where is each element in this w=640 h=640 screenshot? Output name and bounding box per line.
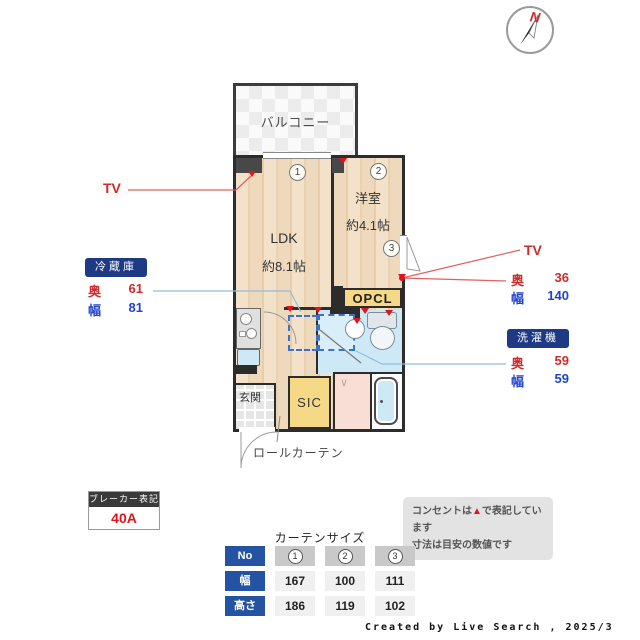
wall-under-kitchen bbox=[236, 365, 257, 374]
outlet-marker-icon bbox=[248, 171, 256, 177]
bathtub-drain-icon bbox=[380, 400, 383, 403]
fridge-placement-box bbox=[288, 315, 318, 351]
tv-depth-value: 36 bbox=[555, 270, 569, 289]
tv-width: 幅 140 bbox=[511, 288, 569, 307]
table-cell-height-1: 186 bbox=[275, 596, 315, 616]
curtain-marker-3: 3 bbox=[383, 240, 400, 257]
outlet-marker-icon bbox=[339, 158, 347, 164]
washer-depth-value: 59 bbox=[555, 353, 569, 372]
washroom: ∨ bbox=[333, 372, 370, 429]
curtain-size-table: No 1 2 3 幅 167 100 111 高さ 186 119 102 bbox=[225, 546, 415, 616]
table-col-1: 1 bbox=[275, 546, 315, 566]
note-line-1: コンセントは▲で表記しています bbox=[412, 503, 544, 537]
ldk-name: LDK bbox=[246, 230, 322, 246]
genkan-label: 玄関 bbox=[239, 389, 261, 405]
sic-label: SIC bbox=[297, 395, 322, 410]
table-cell-height-3: 102 bbox=[375, 596, 415, 616]
kitchen-counter bbox=[236, 308, 261, 349]
bedroom-name: 洋室 bbox=[336, 188, 400, 207]
tv-width-label: 幅 bbox=[511, 288, 524, 307]
fridge-badge: 冷蔵庫 bbox=[85, 258, 147, 277]
fridge-depth-label: 奥 bbox=[88, 281, 101, 300]
breaker-box: ブレーカー表記 40A bbox=[88, 491, 160, 530]
table-row-header-height: 高さ bbox=[225, 596, 265, 616]
table-row-header-no: No bbox=[225, 546, 265, 566]
washer-width-value: 59 bbox=[555, 371, 569, 390]
ldk-size: 約8.1帖 bbox=[246, 256, 322, 275]
toilet-bowl bbox=[370, 326, 395, 350]
table-cell-width-3: 111 bbox=[375, 571, 415, 591]
bathroom bbox=[370, 372, 402, 429]
table-row-header-width: 幅 bbox=[225, 571, 265, 591]
curtain-table-title: カーテンサイズ bbox=[240, 529, 400, 546]
balcony-window bbox=[263, 152, 331, 159]
tv-depth-label: 奥 bbox=[511, 270, 524, 289]
roll-curtain-label: ロールカーテン bbox=[253, 444, 344, 461]
washer-badge: 洗濯機 bbox=[507, 329, 569, 348]
sic-closet: SIC bbox=[288, 376, 331, 429]
outlet-marker-icon bbox=[398, 274, 406, 280]
curtain-marker-2: 2 bbox=[370, 163, 387, 180]
fridge-depth-value: 61 bbox=[129, 281, 143, 300]
table-cell-width-1: 167 bbox=[275, 571, 315, 591]
door-fold-icon: ∨ bbox=[340, 376, 348, 389]
kitchen-burner-icon bbox=[240, 313, 252, 325]
table-col-2: 2 bbox=[325, 546, 365, 566]
credit-line: Created by Live Search , 2025/3 bbox=[365, 622, 614, 633]
outlet-marker-icon bbox=[385, 310, 393, 316]
bedroom-window bbox=[400, 235, 407, 278]
compass-icon: N bbox=[506, 6, 554, 54]
fridge-depth: 奥 61 bbox=[88, 281, 143, 300]
table-col-3: 3 bbox=[375, 546, 415, 566]
balcony-label: バルコニー bbox=[261, 112, 331, 131]
unit-outline: LDK 約8.1帖 洋室 約4.1帖 1 2 3 OPCL 玄関 bbox=[233, 155, 405, 432]
washer-depth: 奥 59 bbox=[511, 353, 569, 372]
breaker-title: ブレーカー表記 bbox=[89, 492, 159, 507]
outlet-marker-icon bbox=[353, 318, 361, 324]
tv-label-left: TV bbox=[103, 180, 121, 196]
outlet-marker-icon bbox=[286, 306, 294, 312]
outlet-legend-icon: ▲ bbox=[472, 506, 482, 517]
genkan-entrance: 玄関 bbox=[236, 383, 276, 429]
kitchen-faucet-icon bbox=[239, 331, 246, 337]
outlet-marker-icon bbox=[361, 308, 369, 314]
washer-depth-label: 奥 bbox=[511, 353, 524, 372]
outlet-marker-icon bbox=[314, 307, 322, 313]
tv-depth: 奥 36 bbox=[511, 270, 569, 289]
tv-width-value: 140 bbox=[547, 288, 569, 307]
floorplan-page: N バルコニー LDK 約8.1帖 洋室 約4.1帖 1 2 3 OPCL bbox=[0, 0, 640, 640]
kitchen-lower-sink bbox=[237, 349, 260, 366]
fridge-width-label: 幅 bbox=[88, 300, 101, 319]
opcl-label: OPCL bbox=[352, 291, 392, 306]
curtain-marker-1: 1 bbox=[289, 164, 306, 181]
table-cell-height-2: 119 bbox=[325, 596, 365, 616]
breaker-value: 40A bbox=[89, 507, 159, 529]
tv-label-right: TV bbox=[524, 242, 542, 258]
note-line-2: 寸法は目安の数値です bbox=[412, 537, 544, 554]
bathtub bbox=[374, 377, 398, 425]
balcony: バルコニー bbox=[233, 83, 358, 160]
kitchen-sink-bowl-icon bbox=[246, 328, 257, 339]
legend-note-box: コンセントは▲で表記しています 寸法は目安の数値です bbox=[403, 497, 553, 560]
washer-width-label: 幅 bbox=[511, 371, 524, 390]
opcl-closet: OPCL bbox=[343, 288, 402, 308]
table-cell-width-2: 100 bbox=[325, 571, 365, 591]
wall-opcl-left bbox=[331, 286, 343, 310]
bedroom-size: 約4.1帖 bbox=[334, 215, 402, 234]
washer-width: 幅 59 bbox=[511, 371, 569, 390]
fridge-width: 幅 81 bbox=[88, 300, 143, 319]
fridge-width-value: 81 bbox=[129, 300, 143, 319]
entrance-door-gap bbox=[239, 427, 275, 436]
